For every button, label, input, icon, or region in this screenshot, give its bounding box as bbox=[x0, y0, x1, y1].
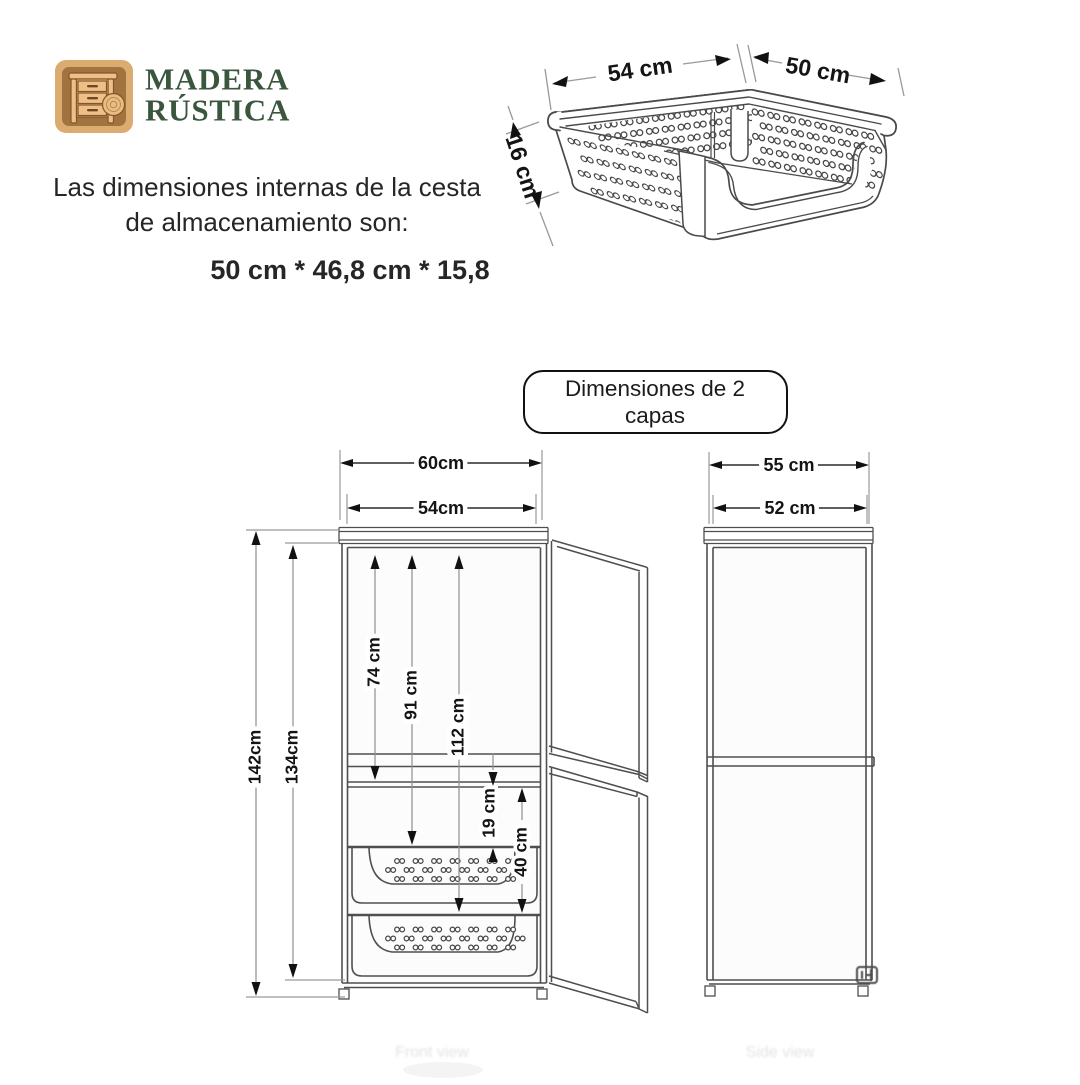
svg-text:60cm: 60cm bbox=[418, 453, 464, 473]
svg-text:Front view: Front view bbox=[395, 1044, 469, 1061]
svg-text:55 cm: 55 cm bbox=[763, 455, 814, 475]
svg-text:Side view: Side view bbox=[746, 1044, 815, 1061]
svg-text:91 cm: 91 cm bbox=[401, 670, 421, 720]
svg-text:RÚSTICA: RÚSTICA bbox=[145, 93, 290, 128]
svg-text:74 cm: 74 cm bbox=[364, 637, 384, 687]
svg-text:19 cm: 19 cm bbox=[479, 788, 499, 838]
svg-text:50 cm * 46,8 cm * 15,8: 50 cm * 46,8 cm * 15,8 bbox=[210, 255, 489, 285]
svg-text:54cm: 54cm bbox=[418, 498, 464, 518]
svg-text:112 cm: 112 cm bbox=[448, 698, 468, 756]
svg-text:52 cm: 52 cm bbox=[764, 498, 815, 518]
svg-text:capas: capas bbox=[625, 403, 685, 428]
svg-text:Las dimensiones internas de la: Las dimensiones internas de la cesta bbox=[53, 172, 481, 202]
svg-text:Dimensiones de 2: Dimensiones de 2 bbox=[565, 376, 745, 401]
svg-text:134cm: 134cm bbox=[282, 730, 302, 785]
svg-text:MADERA: MADERA bbox=[145, 62, 289, 97]
svg-text:40 cm: 40 cm bbox=[511, 827, 531, 877]
svg-text:de almacenamiento son:: de almacenamiento son: bbox=[125, 207, 408, 237]
svg-text:142cm: 142cm bbox=[245, 730, 265, 785]
